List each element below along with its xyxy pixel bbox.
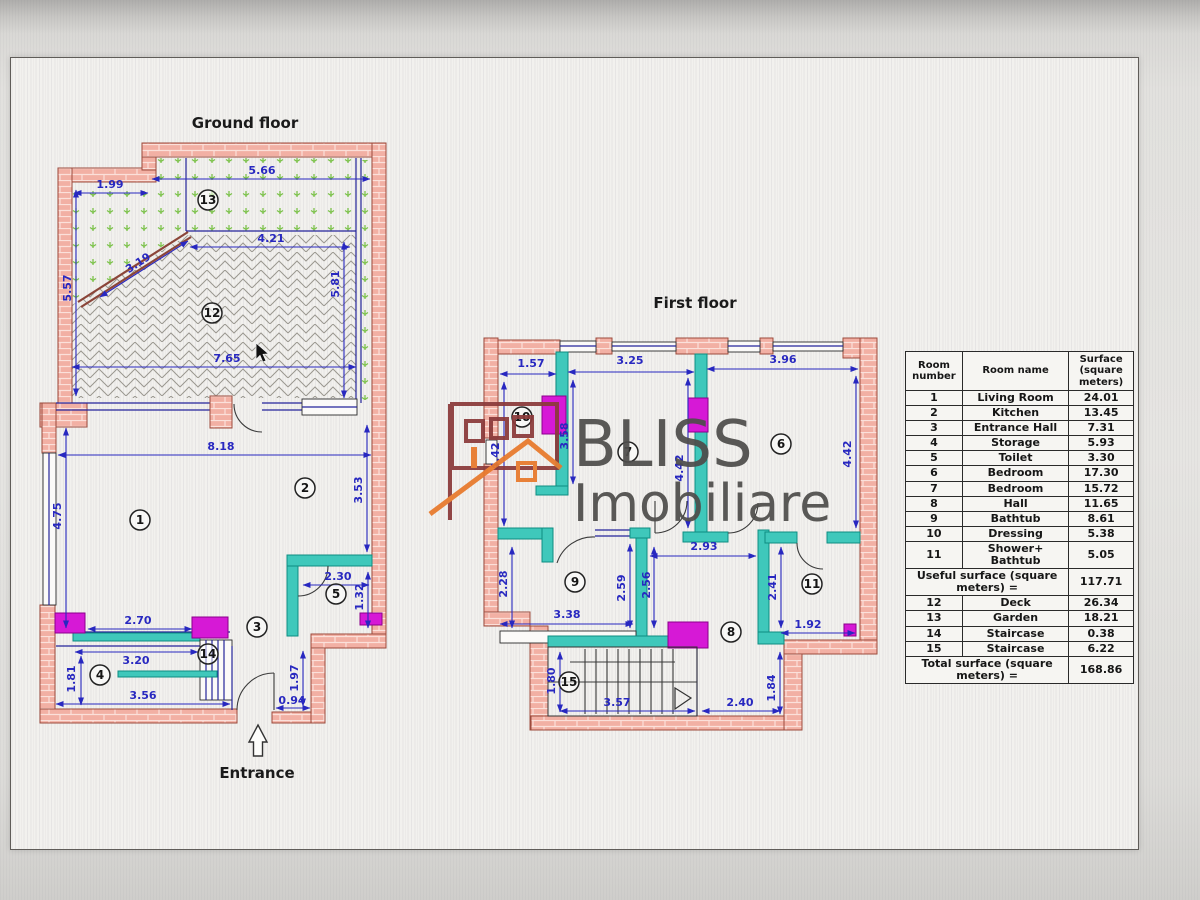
table-cell: Garden — [962, 611, 1068, 626]
table-cell: 13 — [906, 611, 963, 626]
room-number: 12 — [202, 303, 222, 323]
dimension-label: 2.41 — [766, 573, 779, 600]
table-cell: 5.38 — [1069, 526, 1134, 541]
table-row: 1Living Room24.01 — [906, 391, 1134, 406]
furniture-block — [668, 622, 708, 648]
dimension-label: 3.56 — [129, 689, 156, 702]
room-number: 1 — [130, 510, 150, 530]
room-number: 13 — [198, 190, 218, 210]
dimension-label: 4.75 — [51, 502, 64, 529]
table-cell: Deck — [962, 596, 1068, 611]
room-number: 15 — [559, 672, 579, 692]
table-cell: Storage — [962, 436, 1068, 451]
table-cell: 15.72 — [1069, 481, 1134, 496]
dimension-label: 3.53 — [352, 476, 365, 503]
svg-text:3: 3 — [253, 620, 261, 634]
room-number: 8 — [721, 622, 741, 642]
dimension-label: 1.81 — [65, 665, 78, 692]
dimension-label: 2.28 — [497, 570, 510, 597]
table-cell: 8.61 — [1069, 511, 1134, 526]
table-row: 4Storage5.93 — [906, 436, 1134, 451]
table-cell: 13.45 — [1069, 406, 1134, 421]
table-row: 15Staircase6.22 — [906, 641, 1134, 656]
room-number: 3 — [247, 617, 267, 637]
room-number: 2 — [295, 478, 315, 498]
svg-text:9: 9 — [571, 575, 579, 589]
table-cell: 4 — [906, 436, 963, 451]
table-cell: 12 — [906, 596, 963, 611]
dimension-label: 3.25 — [616, 354, 643, 367]
wall-accent — [118, 671, 217, 677]
table-row: 13Garden18.21 — [906, 611, 1134, 626]
dimension-label: 3.20 — [122, 654, 149, 667]
summary-value: 168.86 — [1069, 656, 1134, 683]
svg-text:14: 14 — [200, 647, 217, 661]
dimension-label: 1.80 — [545, 667, 558, 694]
table-row: 12Deck26.34 — [906, 596, 1134, 611]
dimension-label: 4.42 — [841, 440, 854, 467]
table-row: 8Hall11.65 — [906, 496, 1134, 511]
table-cell: 24.01 — [1069, 391, 1134, 406]
dimension-label: 3.58 — [558, 422, 571, 449]
wall-accent — [542, 528, 553, 562]
table-cell: 26.34 — [1069, 596, 1134, 611]
wall-accent — [287, 566, 298, 636]
room-number: 11 — [802, 574, 822, 594]
table-cell: 2 — [906, 406, 963, 421]
table-cell: 11.65 — [1069, 496, 1134, 511]
dimension-label: 8.18 — [207, 440, 234, 453]
photo-background: Ground floor — [0, 0, 1200, 900]
table-row: 9Bathtub8.61 — [906, 511, 1134, 526]
table-column-header: Room name — [962, 352, 1068, 391]
table-cell: 17.30 — [1069, 466, 1134, 481]
table-cell: Bathtub — [962, 511, 1068, 526]
svg-text:1: 1 — [136, 513, 144, 527]
table-cell: 3.30 — [1069, 451, 1134, 466]
table-cell: 14 — [906, 626, 963, 641]
table-cell: 7.31 — [1069, 421, 1134, 436]
room-number: 5 — [326, 584, 346, 604]
furniture-block — [192, 617, 228, 638]
dimension-label: 2.56 — [640, 571, 653, 598]
table-row: 10Dressing5.38 — [906, 526, 1134, 541]
dimension-label: 2.30 — [324, 570, 351, 583]
first-partitions — [498, 352, 860, 716]
dimension-label: 5.57 — [61, 274, 74, 301]
table-cell: 8 — [906, 496, 963, 511]
room-number: 4 — [90, 665, 110, 685]
wall-accent — [287, 555, 372, 566]
surface-table-header-row: Room numberRoom nameSurface (square mete… — [906, 352, 1134, 391]
dimension-label: 3.96 — [769, 353, 796, 366]
table-cell: 5.05 — [1069, 541, 1134, 568]
svg-text:4: 4 — [96, 668, 104, 682]
table-cell: Living Room — [962, 391, 1068, 406]
table-row: 6Bedroom17.30 — [906, 466, 1134, 481]
dimension-label: 5.66 — [248, 164, 275, 177]
door-arc — [557, 537, 595, 563]
svg-text:11: 11 — [804, 577, 821, 591]
table-cell: Staircase — [962, 641, 1068, 656]
table-row: 5Toilet3.30 — [906, 451, 1134, 466]
summary-label: Useful surface (square meters) = — [906, 569, 1069, 596]
dimension-label: 1.32 — [353, 583, 366, 610]
table-cell: 9 — [906, 511, 963, 526]
stair-direction-arrow — [675, 688, 691, 709]
svg-text:13: 13 — [200, 193, 217, 207]
door-arc — [234, 404, 262, 432]
table-row: 11Shower+ Bathtub5.05 — [906, 541, 1134, 568]
table-cell: 1 — [906, 391, 963, 406]
door-arc — [797, 543, 823, 569]
ground-floor-title: Ground floor — [192, 114, 299, 132]
svg-text:2: 2 — [301, 481, 309, 495]
room-number: 14 — [198, 644, 218, 664]
table-cell: 5.93 — [1069, 436, 1134, 451]
summary-value: 117.71 — [1069, 569, 1134, 596]
dimension-label: 1.99 — [96, 178, 123, 191]
dimension-label: 1.84 — [765, 674, 778, 701]
room-number: 9 — [565, 572, 585, 592]
furniture-block — [55, 613, 85, 633]
surface-table: Room numberRoom nameSurface (square mete… — [905, 351, 1134, 684]
table-cell: Entrance Hall — [962, 421, 1068, 436]
dimension-label: 2.93 — [690, 540, 717, 553]
entrance-door-arc — [237, 673, 274, 710]
table-cell: 7 — [906, 481, 963, 496]
garden-strip — [361, 160, 372, 400]
table-cell: 11 — [906, 541, 963, 568]
svg-text:12: 12 — [204, 306, 221, 320]
svg-text:8: 8 — [727, 625, 735, 639]
table-column-header: Room number — [906, 352, 963, 391]
summary-label: Total surface (square meters) = — [906, 656, 1069, 683]
table-cell: Staircase — [962, 626, 1068, 641]
table-cell: 6 — [906, 466, 963, 481]
table-cell: Dressing — [962, 526, 1068, 541]
table-cell: 3 — [906, 421, 963, 436]
table-column-header: Surface (square meters) — [1069, 352, 1134, 391]
surface-table-body: 1Living Room24.012Kitchen13.453Entrance … — [906, 391, 1134, 684]
deck-living-wall — [56, 396, 357, 432]
table-row: 14Staircase0.38 — [906, 626, 1134, 641]
brand-tagline: Imobiliare — [573, 474, 831, 534]
table-cell: 0.38 — [1069, 626, 1134, 641]
dimension-label: 1.92 — [794, 618, 821, 631]
furniture-block — [360, 613, 382, 625]
ground-floor-plan: Ground floor — [40, 114, 386, 782]
first-floor-title: First floor — [653, 294, 737, 312]
dimension-label: 1.97 — [288, 664, 301, 691]
dimension-label: 0.94 — [278, 694, 305, 707]
table-cell: Bedroom — [962, 466, 1068, 481]
dimension-label: 1.57 — [517, 357, 544, 370]
ground-partitions — [55, 613, 274, 710]
dimension-label: 7.65 — [213, 352, 240, 365]
dimension-label: 3.57 — [603, 696, 630, 709]
table-cell: Toilet — [962, 451, 1068, 466]
table-cell: 5 — [906, 451, 963, 466]
table-summary-row: Total surface (square meters) =168.86 — [906, 656, 1134, 683]
brand-name: BLISS — [573, 408, 753, 482]
wall-accent — [536, 486, 568, 495]
table-cell: Hall — [962, 496, 1068, 511]
table-cell: 15 — [906, 641, 963, 656]
table-cell: Shower+ Bathtub — [962, 541, 1068, 568]
table-cell: Kitchen — [962, 406, 1068, 421]
wall-accent — [758, 632, 784, 644]
table-cell: Bedroom — [962, 481, 1068, 496]
wall-accent — [827, 532, 860, 543]
svg-text:5: 5 — [332, 587, 340, 601]
dimension-label: 2.59 — [615, 574, 628, 601]
dimension-label: 2.40 — [726, 696, 753, 709]
table-cell: 10 — [906, 526, 963, 541]
table-cell: 18.21 — [1069, 611, 1134, 626]
dimension-label: 5.81 — [329, 270, 342, 297]
table-row: 2Kitchen13.45 — [906, 406, 1134, 421]
svg-text:15: 15 — [561, 675, 578, 689]
entrance-label: Entrance — [219, 764, 294, 782]
svg-text:6: 6 — [777, 437, 785, 451]
table-row: 7Bedroom15.72 — [906, 481, 1134, 496]
furniture-block — [844, 624, 856, 636]
dimension-label: 4.21 — [257, 232, 284, 245]
table-summary-row: Useful surface (square meters) =117.71 — [906, 569, 1134, 596]
wall-accent — [73, 633, 200, 641]
dimension-label: 2.70 — [124, 614, 151, 627]
entrance-arrow — [249, 725, 267, 756]
room-number: 6 — [771, 434, 791, 454]
table-cell: 6.22 — [1069, 641, 1134, 656]
table-row: 3Entrance Hall7.31 — [906, 421, 1134, 436]
dimension-label: 3.38 — [553, 608, 580, 621]
